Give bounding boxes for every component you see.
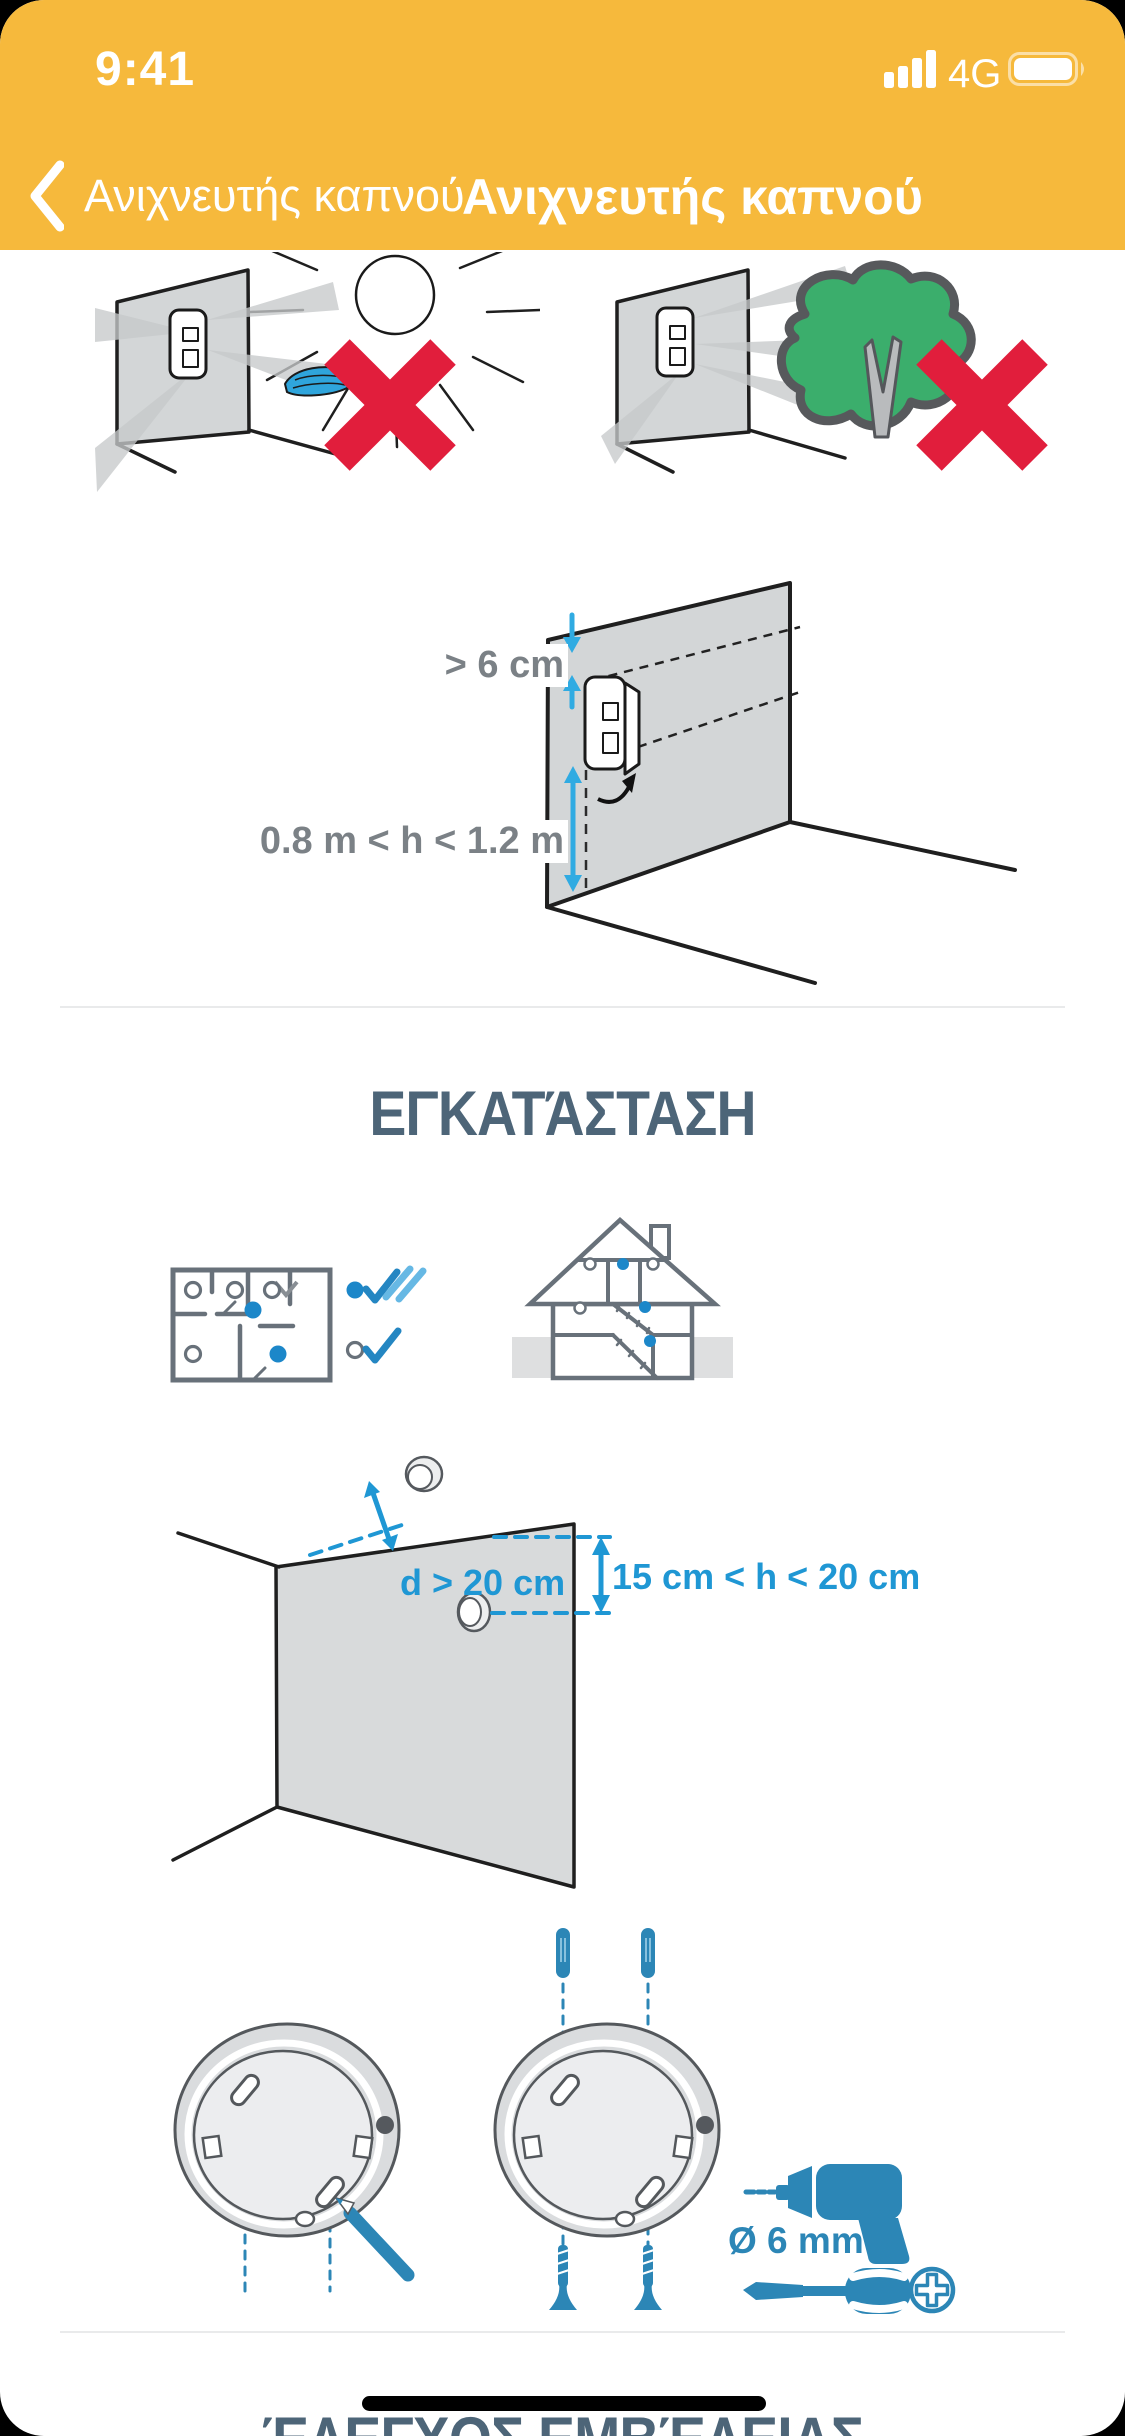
battery-full-icon — [1008, 52, 1090, 86]
top-clearance-label: > 6 cm — [400, 644, 568, 687]
mounting-height-label: 0.8 m < h < 1.2 m — [225, 820, 568, 863]
corner-distance-label: d > 20 cm — [400, 1562, 565, 1604]
screwdriver-icon — [743, 2268, 911, 2314]
back-button-label: Ανιχνευτής καπνού — [84, 170, 465, 222]
phillips-head-icon — [911, 2269, 953, 2311]
corner-distance-arrow — [364, 1481, 398, 1551]
wall-detector-device — [657, 308, 693, 376]
wall-detector-device — [585, 677, 639, 774]
back-button[interactable]: Ανιχνευτής καπνού — [30, 160, 465, 232]
floorplan-placement-illustration — [165, 1262, 440, 1387]
installation-heading: ΕΓΚΑΤΆΣΤΑΣΗ — [68, 1078, 1058, 1150]
chevron-left-icon — [30, 160, 64, 232]
ceiling-gap-arrow — [592, 1537, 610, 1613]
ceiling-detector — [406, 1457, 442, 1491]
section-divider — [60, 2331, 1065, 2333]
wall-plug-icon — [556, 1928, 655, 1978]
ceiling-gap-label: 15 cm < h < 20 cm — [612, 1556, 920, 1598]
wall-mount-height-illustration — [170, 555, 1020, 1005]
header-bar: 9:41 4G Ανιχνευτής καπνού Ανιχνευτής καπ… — [0, 0, 1125, 250]
screw-icon — [549, 2245, 662, 2310]
status-time: 9:41 — [95, 42, 195, 97]
section-divider — [60, 1006, 1065, 1008]
house-section-placement-illustration — [505, 1212, 740, 1384]
corner-distance-illustration — [140, 1445, 660, 1905]
signal-bars-icon — [884, 50, 938, 88]
pencil-icon — [336, 2198, 408, 2275]
app-screen: 9:41 4G Ανιχνευτής καπνού Ανιχνευτής καπ… — [0, 0, 1125, 2436]
home-indicator[interactable] — [362, 2396, 766, 2411]
page-title: Ανιχνευτής καπνού — [462, 168, 923, 226]
network-type-label: 4G — [948, 52, 1001, 97]
drill-diameter-label: Ø 6 mm — [728, 2220, 864, 2262]
wall-detector-device — [170, 310, 206, 378]
red-cross-icon — [324, 339, 456, 471]
good-spot-legend — [347, 1269, 424, 1360]
base-marking-pencil-illustration — [160, 1995, 430, 2305]
